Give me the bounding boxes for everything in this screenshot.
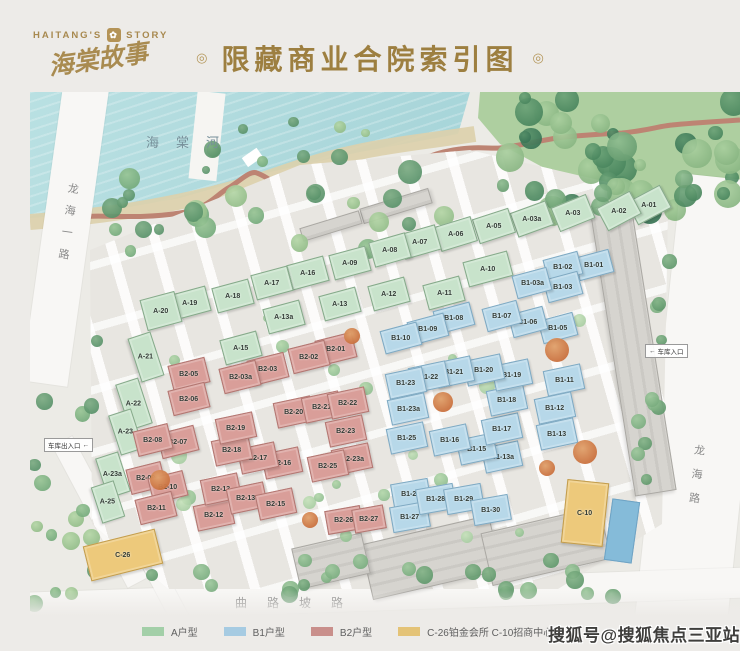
building: B2-25 <box>307 449 350 482</box>
building: A-08 <box>368 232 412 267</box>
building-label: B1-03 <box>553 284 572 291</box>
building: A-13a <box>262 300 305 335</box>
building-label: B1-10 <box>391 335 410 342</box>
building-label: B1-25 <box>397 435 416 442</box>
building-label: B2-26 <box>334 517 353 524</box>
building-label: A-06 <box>448 231 463 238</box>
building-label: A-11 <box>437 290 452 297</box>
building-label: B1-02 <box>553 264 572 271</box>
building-label: A-03 <box>565 210 580 217</box>
legend-item: C-26铂金会所 C-10招商中心 <box>398 624 553 639</box>
building-label: A-15 <box>233 345 248 352</box>
building-label: A-01 <box>641 202 656 209</box>
ornament-right-icon: ◎ <box>533 50 544 66</box>
building-label: A-03a <box>522 216 541 223</box>
legend-label: B2户型 <box>340 624 372 639</box>
building-label: B1-01 <box>584 262 603 269</box>
legend-swatch <box>398 627 420 636</box>
building: A-03 <box>551 194 596 232</box>
building-label: B1-16 <box>440 437 459 444</box>
building-label: B1-19 <box>502 372 521 379</box>
building-label: B2-18 <box>222 447 241 454</box>
watermark: 搜狐号@搜狐焦点三亚站 <box>548 621 740 646</box>
building-label: B1-18 <box>497 397 516 404</box>
building-label: A-12 <box>381 291 396 298</box>
building: A-21 <box>127 331 164 382</box>
building-label: B1-05 <box>548 325 567 332</box>
legend-swatch <box>224 627 246 636</box>
legend-item: A户型 <box>142 624 198 639</box>
building-label: A-17 <box>264 280 279 287</box>
building-label: B2-20 <box>284 409 303 416</box>
building-label: A-13a <box>274 314 293 321</box>
building: B2-11 <box>134 491 177 525</box>
page-title: 限藏商业合院索引图 <box>221 38 518 78</box>
site-plan-map: A-01A-02A-03A-03aA-05A-06A-07A-08A-09A-1… <box>30 92 740 620</box>
building: C-10 <box>561 479 609 547</box>
building-label: B1-03a <box>521 280 544 287</box>
building-label: B2-25 <box>318 463 337 470</box>
building-label: B1-30 <box>481 507 500 514</box>
building-label: B1-07 <box>492 313 511 320</box>
building-label: A-23 <box>118 429 133 436</box>
legend-label: A户型 <box>171 624 198 639</box>
building-label: A-08 <box>382 247 397 254</box>
building-label: B2-10 <box>158 484 177 491</box>
legend-item: B2户型 <box>311 624 372 639</box>
building: B2-19 <box>215 411 258 444</box>
building-label: A-16 <box>300 270 315 277</box>
legend-swatch <box>142 627 164 636</box>
legend-label: B1户型 <box>253 624 285 639</box>
building-label: A-13 <box>332 301 347 308</box>
building-label: A-18 <box>225 293 240 300</box>
left-arrow-icon: ← <box>649 348 656 355</box>
building: A-17 <box>250 266 293 301</box>
building: B2-27 <box>351 504 387 533</box>
building-label: A-10 <box>480 266 495 273</box>
building-label: B1-17 <box>492 426 511 433</box>
building-label: B1-28 <box>426 496 445 503</box>
building-label: A-07 <box>412 239 427 246</box>
building-label: B2-23 <box>336 428 355 435</box>
building-label: A-09 <box>342 260 357 267</box>
building-label: B1-11 <box>555 377 574 384</box>
building-label: B2-19 <box>226 425 245 432</box>
building: A-13 <box>318 287 361 322</box>
building-label: B2-12 <box>204 512 223 519</box>
building: A-05 <box>472 208 516 244</box>
building: B1-10 <box>380 321 423 354</box>
building-label: B1-23a <box>397 406 420 413</box>
garage-exit-label: 车库出入口 ← <box>44 438 93 452</box>
building: A-20 <box>139 291 182 331</box>
building-label: B2-06 <box>179 396 198 403</box>
page: { "header": { "logo_left": "HAITANG'S", … <box>0 0 740 651</box>
building-label: B2-08 <box>143 437 162 444</box>
building-label: A-05 <box>486 223 501 230</box>
legend: A户型B1户型B2户型C-26铂金会所 C-10招商中心 <box>142 624 553 639</box>
building-label: C-10 <box>577 510 592 517</box>
building-label: A-25 <box>100 499 115 506</box>
building-label: B1-08 <box>444 315 463 322</box>
building-label: B2-27 <box>359 516 378 523</box>
building-label: B2-03 <box>258 366 277 373</box>
building-label: A-21 <box>138 354 153 361</box>
building-label: B2-11 <box>147 505 166 512</box>
building: A-18 <box>211 279 254 314</box>
building-label: B2-01 <box>326 346 345 353</box>
building-label: B1-09 <box>418 326 437 333</box>
river-label: 海棠河 <box>146 132 236 151</box>
garage-entry-label: ← 车库入口 <box>645 344 688 358</box>
building-label: B2-03a <box>229 374 252 381</box>
building-label: B2-15 <box>266 501 285 508</box>
building-label: B1-20 <box>474 367 493 374</box>
building: C-26 <box>83 529 164 582</box>
building: B1-25 <box>386 421 429 454</box>
left-arrow-icon: ← <box>83 442 90 449</box>
building: A-10 <box>462 250 513 287</box>
building-label: A-22 <box>126 401 141 408</box>
building-label: B2-05 <box>179 371 198 378</box>
title-row: ◎ 限藏商业合院索引图 ◎ <box>0 38 740 78</box>
building: A-03a <box>510 200 555 237</box>
legend-swatch <box>311 627 333 636</box>
building-label: A-23a <box>103 471 122 478</box>
building: A-16 <box>286 256 329 291</box>
building-label: B1-27 <box>400 514 419 521</box>
building-label: A-02 <box>611 208 626 215</box>
building-label: B2-02 <box>299 354 318 361</box>
building-label: B1-23 <box>396 380 415 387</box>
legend-label: C-26铂金会所 C-10招商中心 <box>427 624 553 639</box>
building: B2-02 <box>287 340 330 374</box>
building-label: C-26 <box>115 552 130 559</box>
bottom-fade <box>30 590 740 620</box>
building: B1-30 <box>470 494 512 526</box>
building-label: A-19 <box>182 300 197 307</box>
building-label: B1-13 <box>547 431 566 438</box>
map-buildings: A-01A-02A-03A-03aA-05A-06A-07A-08A-09A-1… <box>30 92 740 620</box>
building-label: A-20 <box>153 308 168 315</box>
ornament-left-icon: ◎ <box>196 50 207 66</box>
building: A-12 <box>367 277 410 312</box>
legend-item: B1户型 <box>224 624 285 639</box>
building: A-09 <box>328 246 371 281</box>
building-label: B2-22 <box>338 400 357 407</box>
building-label: B1-12 <box>545 405 564 412</box>
